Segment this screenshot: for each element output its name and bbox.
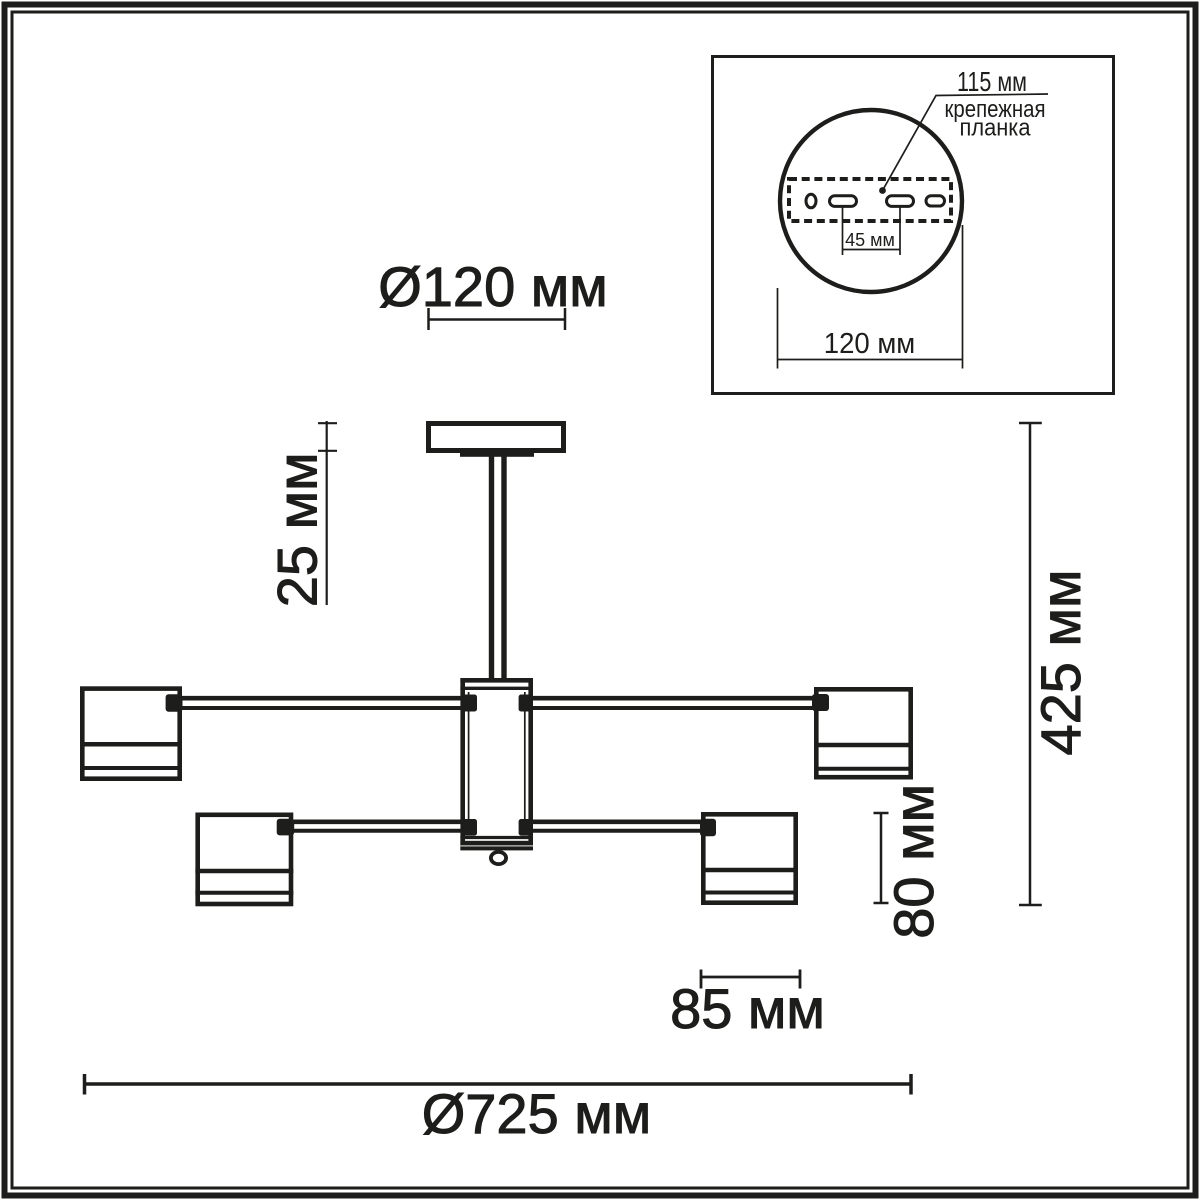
svg-text:25 мм: 25 мм [266, 452, 329, 607]
svg-text:120 мм: 120 мм [824, 326, 915, 359]
svg-text:планка: планка [960, 114, 1031, 141]
svg-text:45 мм: 45 мм [845, 230, 895, 250]
svg-text:115 мм: 115 мм [957, 66, 1027, 97]
svg-text:Ø725 мм: Ø725 мм [422, 1082, 652, 1145]
svg-text:425 мм: 425 мм [1029, 570, 1092, 756]
svg-text:Ø120 мм: Ø120 мм [378, 255, 608, 318]
svg-text:85 мм: 85 мм [670, 977, 825, 1040]
svg-text:80 мм: 80 мм [882, 784, 945, 939]
